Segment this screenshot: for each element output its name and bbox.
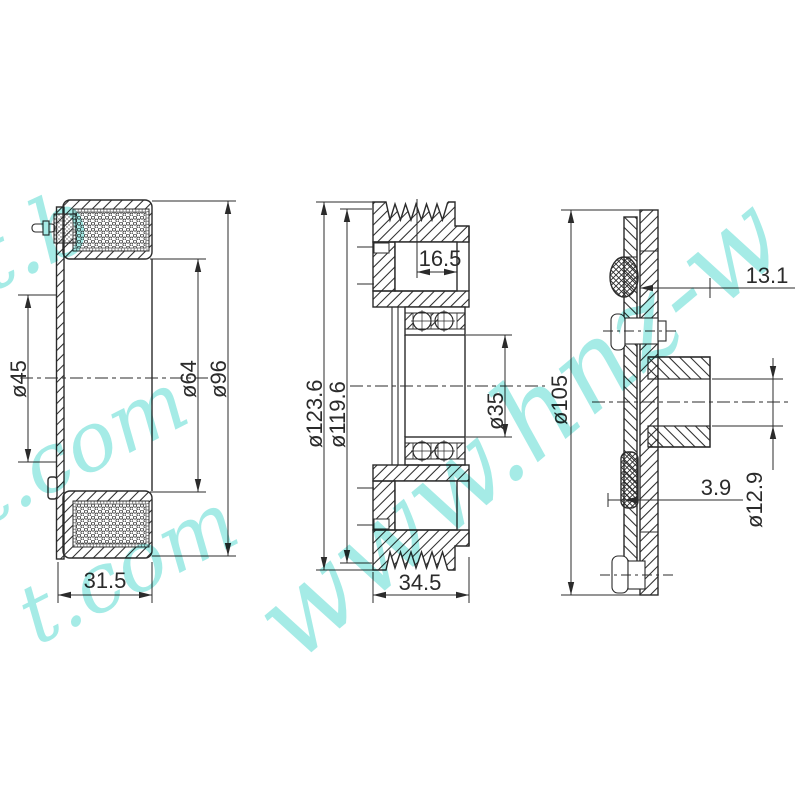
arrow-icon [225,543,231,556]
coil-top-winding [76,212,146,248]
dim-label-thickness: 3.9 [701,475,732,500]
dim-label-offset: 13.1 [746,263,789,288]
dim-label-d1236: ø123.6 [302,380,327,449]
rubber-damper-upper [610,257,638,297]
arrow-icon [321,202,327,215]
coil-mount-tab [48,477,57,499]
clutch-assembly-drawing: ø45 ø64 ø96 31.5 [0,0,800,800]
dim-label-d45: ø45 [6,360,31,398]
dim-label-d105: ø105 [547,375,572,425]
dim-label-bore: ø12.9 [742,472,767,528]
arrow-icon [195,259,201,272]
dim-label-d35: ø35 [483,392,508,430]
arrow-icon [344,209,350,222]
coil-pin-collar [43,221,49,235]
arrow-icon [321,557,327,570]
pulley-groove-band-top [373,202,469,242]
arrow-icon [456,592,469,598]
arrow-icon [25,295,31,308]
arrow-icon [502,335,508,348]
dim-label-coil-width: 31.5 [84,568,127,593]
arrow-icon [344,550,350,563]
pulley-band-top [373,291,469,307]
pulley-tab-slot [374,519,389,529]
dim-label-d64: ø64 [176,360,201,398]
arrow-icon [373,592,386,598]
arrow-icon [770,366,776,379]
pulley-recess-bottom [395,481,457,530]
stop-bolt-bottom [600,556,676,593]
dim-label-d1196: ø119.6 [325,381,350,448]
arrow-icon [770,426,776,439]
bearing-lower [405,437,465,465]
arrow-icon [139,592,152,598]
dim-label-recess: 16.5 [419,246,462,271]
bearing-upper [405,307,465,335]
pulley-groove-band-bottom [373,530,469,570]
arrow-icon [225,201,231,214]
arrow-icon [568,582,574,595]
arrow-icon [58,592,71,598]
engineering-drawing-page: ø45 ø64 ø96 31.5 [0,0,800,800]
coil-connector [54,214,76,243]
pulley-tab-slot [374,243,389,253]
coil-bottom-winding [76,504,146,544]
arrow-icon [195,479,201,492]
arrow-icon [25,449,31,462]
dim-label-pulley-width: 34.5 [399,570,442,595]
arrow-icon [568,210,574,223]
pulley-band-bottom [373,465,469,481]
dim-label-d96: ø96 [206,360,231,398]
